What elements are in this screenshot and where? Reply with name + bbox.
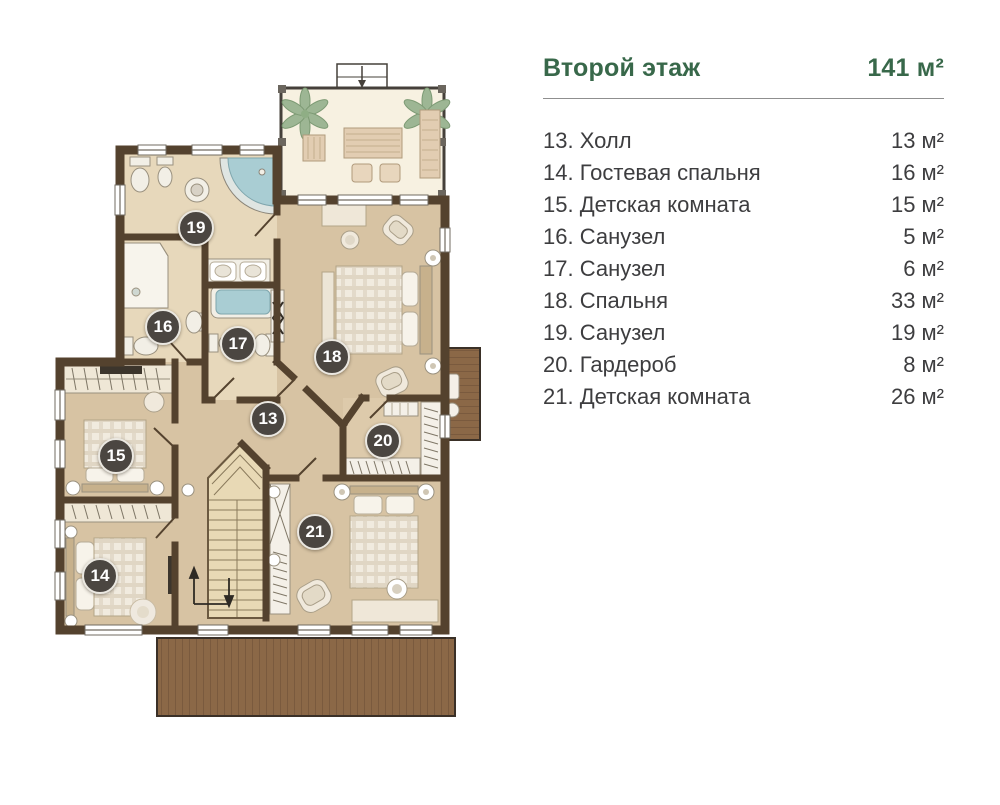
room-badge-14: 14 (82, 558, 118, 594)
room-badge-13: 13 (250, 401, 286, 437)
room-label: 13. Холл (543, 128, 632, 154)
room-area: 8 м² (903, 352, 944, 378)
separator-line (543, 98, 944, 99)
legend-row: 20. Гардероб 8 м² (543, 349, 944, 381)
sconce-icon (268, 554, 280, 566)
room-area: 19 м² (891, 320, 944, 346)
legend-row: 15. Детская комната 15 м² (543, 189, 944, 221)
legend-row: 14. Гостевая спальня 16 м² (543, 157, 944, 189)
room-label: 19. Санузел (543, 320, 665, 346)
legend-row: 18. Спальня 33 м² (543, 285, 944, 317)
legend-row: 19. Санузел 19 м² (543, 317, 944, 349)
room-list: 13. Холл 13 м² 14. Гостевая спальня 16 м… (543, 125, 944, 413)
balcony (278, 64, 452, 200)
laundry-icon (185, 178, 209, 202)
legend-header: Второй этаж 141 м² (543, 54, 944, 83)
floor-plan-svg (0, 0, 540, 800)
pouf-icon (144, 392, 164, 412)
room-area: 13 м² (891, 128, 944, 154)
room-label: 15. Детская комната (543, 192, 751, 218)
room-badge-18: 18 (314, 339, 350, 375)
floor-title: Второй этаж (543, 54, 700, 83)
legend-row: 17. Санузел 6 м² (543, 253, 944, 285)
room-badge-17: 17 (220, 326, 256, 362)
room-area: 6 м² (903, 256, 944, 282)
room-area: 16 м² (891, 160, 944, 186)
nightstand-icon (150, 481, 164, 495)
floor-total-area: 141 м² (867, 54, 944, 83)
room-label: 18. Спальня (543, 288, 668, 314)
room-label: 20. Гардероб (543, 352, 676, 378)
room-badge-19: 19 (178, 210, 214, 246)
nightstand-icon (65, 615, 77, 627)
legend-row: 13. Холл 13 м² (543, 125, 944, 157)
sconce-icon (182, 484, 194, 496)
room-badge-16: 16 (145, 309, 181, 345)
closet-icon (64, 502, 172, 522)
room-area: 33 м² (891, 288, 944, 314)
toilet-icon (130, 157, 150, 192)
sconce-icon (268, 486, 280, 498)
shower-icon (123, 243, 168, 308)
room-area: 5 м² (903, 224, 944, 250)
floor-plan: 19 16 17 18 13 20 15 21 14 (0, 0, 540, 800)
bathtub-icon (211, 286, 275, 318)
room-area: 15 м² (891, 192, 944, 218)
nightstand-icon (66, 481, 80, 495)
room-label: 14. Гостевая спальня (543, 160, 761, 186)
double-sink-vanity-icon (206, 259, 270, 285)
room-area: 26 м² (891, 384, 944, 410)
tv-icon (100, 366, 142, 374)
room-badge-20: 20 (365, 423, 401, 459)
legend-row: 16. Санузел 5 м² (543, 221, 944, 253)
room-badge-21: 21 (297, 514, 333, 550)
legend-panel: Второй этаж 141 м² 13. Холл 13 м² 14. Го… (543, 54, 944, 413)
room-badge-15: 15 (98, 438, 134, 474)
room-label: 16. Санузел (543, 224, 665, 250)
bidet-icon (157, 157, 173, 187)
deck-bottom (157, 638, 455, 716)
desk-icon (352, 600, 438, 622)
nightstand-icon (65, 526, 77, 538)
room-label: 21. Детская комната (543, 384, 751, 410)
shelf-unit-icon (270, 484, 290, 614)
room-label: 17. Санузел (543, 256, 665, 282)
legend-row: 21. Детская комната 26 м² (543, 381, 944, 413)
desk-icon (322, 204, 366, 226)
